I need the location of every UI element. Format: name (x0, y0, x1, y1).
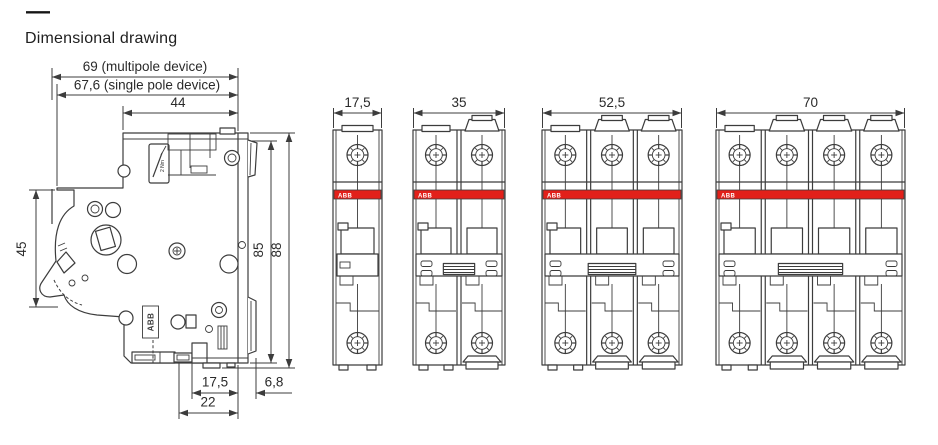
side-outline (40, 133, 248, 363)
screw-icon (729, 145, 750, 166)
brand-label: ABB (547, 193, 561, 199)
screw-icon (472, 333, 493, 354)
dim-din-recess: 17,5 (202, 375, 228, 390)
dim-depth-single-pole: 67,6 (single pole device) (74, 78, 220, 93)
brand-label: ABB (721, 193, 735, 199)
torque-label: 2 Nm (160, 160, 166, 172)
torque-icon (149, 144, 169, 183)
dimensional-drawing-page: — Dimensional drawing (0, 0, 938, 445)
dimension-label: 70 (803, 95, 818, 110)
screw-icon (602, 145, 623, 166)
brand-label: ABB (418, 193, 432, 199)
screw-icon (729, 333, 750, 354)
dim-front-height: 45 (14, 241, 29, 256)
brand-label: ABB (338, 193, 352, 199)
dim-height-total: 88 (269, 242, 284, 257)
screw-icon (776, 333, 797, 354)
screw-icon (602, 333, 623, 354)
side-view: 69 (multipole device) 67,6 (single pole … (14, 59, 295, 419)
front-view-4-pole: 70ABB (716, 95, 905, 370)
screw-icon (426, 145, 447, 166)
screw-icon (472, 145, 493, 166)
screw-icon (347, 145, 368, 166)
screw-icon (871, 145, 892, 166)
screw-icon (648, 145, 669, 166)
front-view-1-pole: 17,5ABB (333, 95, 382, 370)
abb-logo-label: ABB (147, 313, 156, 332)
dim-clip-depth: 6,8 (265, 375, 284, 390)
screw-icon (426, 333, 447, 354)
dim-height-body: 85 (251, 242, 266, 257)
dim-depth-multipole: 69 (multipole device) (83, 59, 208, 74)
dim-depth-top: 44 (170, 95, 186, 110)
screw-icon (347, 333, 368, 354)
screw-icon (824, 333, 845, 354)
dim-base-width: 22 (200, 395, 215, 410)
screw-icon (555, 333, 576, 354)
front-view-2-pole: 35ABB (413, 95, 505, 370)
screw-icon (871, 333, 892, 354)
screw-icon (648, 333, 669, 354)
dimension-label: 35 (451, 95, 466, 110)
screw-icon (555, 145, 576, 166)
front-view-3-pole: 52,5ABB (542, 95, 682, 370)
dimension-label: 52,5 (599, 95, 625, 110)
dimension-label: 17,5 (344, 95, 370, 110)
screw-icon (776, 145, 797, 166)
screw-icon (824, 145, 845, 166)
front-views: 17,5ABB35ABB52,5ABB70ABB (333, 95, 905, 370)
brand-band (543, 190, 681, 199)
dimensional-drawing: 69 (multipole device) 67,6 (single pole … (0, 0, 938, 445)
brand-band (717, 190, 904, 199)
